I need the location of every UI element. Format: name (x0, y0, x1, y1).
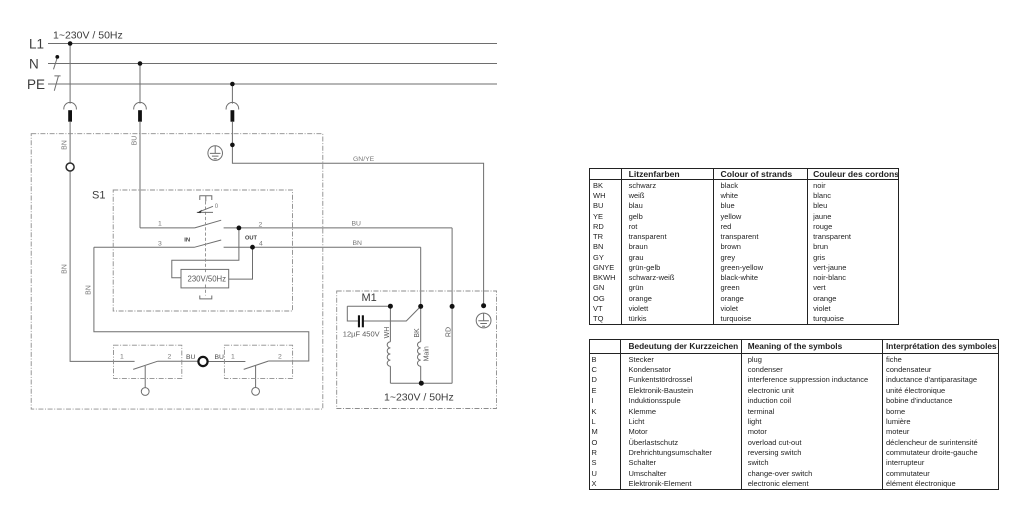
svg-text:12µF 450V: 12µF 450V (343, 330, 380, 339)
svg-text:GN/YE: GN/YE (353, 156, 375, 163)
svg-text:WH: WH (384, 327, 391, 339)
svg-text:OUT: OUT (245, 236, 258, 242)
svg-text:1: 1 (231, 354, 235, 361)
svg-text:2: 2 (278, 354, 282, 361)
svg-text:L1: L1 (29, 37, 44, 52)
svg-text:3: 3 (158, 240, 162, 247)
svg-text:1: 1 (120, 354, 124, 361)
svg-text:1: 1 (158, 221, 162, 228)
svg-text:BU: BU (186, 354, 196, 361)
svg-text:RD: RD (446, 327, 453, 337)
svg-text:0: 0 (215, 204, 219, 210)
svg-text:Main: Main (424, 346, 431, 361)
svg-text:2: 2 (259, 221, 263, 228)
svg-text:BN: BN (62, 264, 69, 274)
svg-text:PE: PE (27, 77, 45, 92)
svg-text:1~230V / 50Hz: 1~230V / 50Hz (53, 30, 123, 42)
svg-text:230V/50Hz: 230V/50Hz (188, 275, 227, 284)
svg-text:BU: BU (352, 221, 362, 228)
svg-text:BN: BN (353, 240, 363, 247)
svg-text:2: 2 (168, 354, 172, 361)
svg-text:4: 4 (259, 240, 263, 247)
svg-text:1~230V / 50Hz: 1~230V / 50Hz (384, 392, 454, 404)
svg-text:S1: S1 (92, 190, 105, 202)
svg-text:BK: BK (414, 328, 421, 338)
svg-text:BU: BU (132, 136, 139, 146)
svg-text:M1: M1 (362, 292, 377, 304)
svg-text:BN: BN (62, 140, 69, 150)
svg-text:IN: IN (184, 238, 190, 244)
svg-text:BU: BU (215, 354, 225, 361)
svg-text:BN: BN (86, 285, 93, 295)
svg-text:N: N (29, 57, 39, 72)
